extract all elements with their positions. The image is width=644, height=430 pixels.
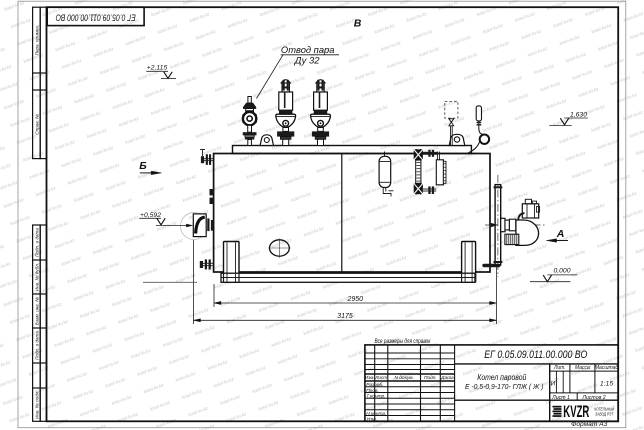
svg-text:Формат А3: Формат А3 [571, 421, 608, 428]
svg-text:Ду 32: Ду 32 [294, 56, 320, 66]
svg-text:0,000: 0,000 [553, 267, 570, 274]
svg-text:Масса: Масса [575, 365, 590, 371]
svg-text:1,630: 1,630 [570, 112, 587, 119]
svg-text:Изм.: Изм. [365, 375, 375, 380]
svg-text:+2,115: +2,115 [147, 65, 168, 72]
svg-text:Т.контр.: Т.контр. [366, 394, 385, 400]
svg-text:Взам. инв. №: Взам. инв. № [35, 297, 40, 325]
svg-text:Н.контр.: Н.контр. [366, 411, 386, 417]
svg-text:N докум.: N докум. [394, 375, 413, 381]
svg-text:ЕГ 0.05.09.011.00.000 ВО: ЕГ 0.05.09.011.00.000 ВО [484, 349, 587, 361]
svg-text:Перв. примен.: Перв. примен. [35, 25, 40, 56]
svg-text:Лит.: Лит. [553, 365, 566, 371]
svg-text:Отвод пара: Отвод пара [281, 45, 335, 55]
svg-text:Дата: Дата [440, 375, 454, 381]
svg-text:Лист 1: Лист 1 [551, 395, 570, 401]
svg-text:ЗАВОД РЭТ: ЗАВОД РЭТ [595, 412, 613, 417]
svg-text:3175: 3175 [337, 313, 353, 320]
svg-text:А: А [556, 228, 565, 240]
svg-text:Подп.: Подп. [424, 375, 437, 381]
svg-text:KVZR: KVZR [563, 402, 589, 421]
svg-text:Масштаб: Масштаб [595, 365, 619, 371]
svg-text:1:15: 1:15 [600, 381, 613, 388]
svg-text:Б: Б [139, 160, 147, 172]
svg-text:Разраб.: Разраб. [366, 382, 383, 388]
svg-text:ЕГ 0.05.09.011.00.000 ВО: ЕГ 0.05.09.011.00.000 ВО [56, 12, 136, 22]
svg-text:Е -0,5-0,9-170- ГЛЖ ( Ж ): Е -0,5-0,9-170- ГЛЖ ( Ж ) [465, 382, 544, 391]
svg-text:Подп. и дата: Подп. и дата [35, 228, 40, 257]
svg-text:Инв. № подл.: Инв. № подл. [35, 390, 40, 419]
svg-text:Утв.: Утв. [366, 416, 377, 422]
svg-text:Листов 2: Листов 2 [581, 395, 605, 401]
svg-text:Инв. № дубл.: Инв. № дубл. [35, 263, 40, 291]
svg-text:Котел паровой: Котел паровой [477, 373, 526, 382]
svg-text:И: И [551, 381, 556, 388]
svg-text:Подп. и дата: Подп. и дата [35, 331, 40, 360]
svg-text:Лист: Лист [374, 375, 387, 380]
svg-text:Справ. №: Справ. № [35, 114, 40, 135]
svg-text:2950: 2950 [347, 296, 364, 303]
svg-text:В: В [354, 18, 362, 30]
svg-text:Все размеры для справок: Все размеры для справок [375, 337, 432, 345]
svg-text:Пров.: Пров. [366, 388, 379, 394]
